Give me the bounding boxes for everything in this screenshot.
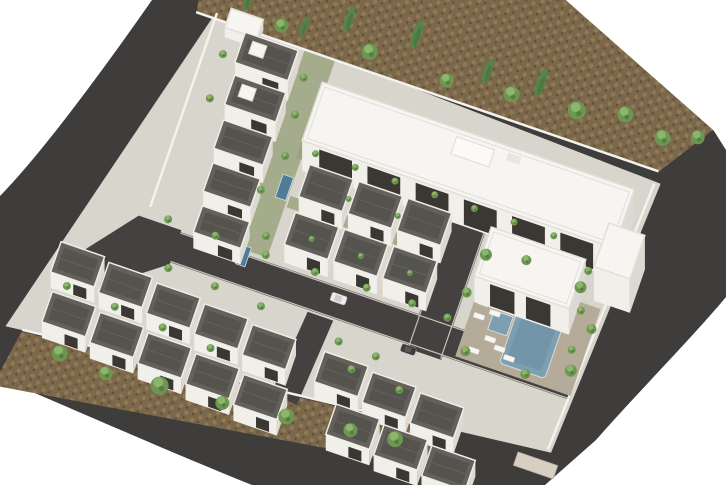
site-plan-render (0, 0, 726, 485)
architectural-render (0, 0, 726, 485)
